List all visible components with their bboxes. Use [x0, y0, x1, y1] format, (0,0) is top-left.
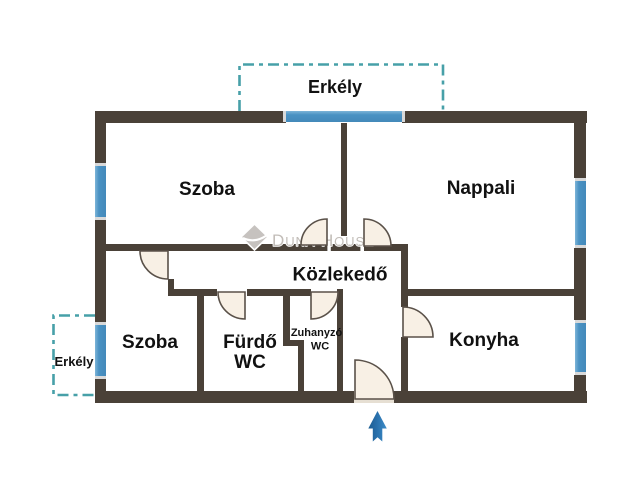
- svg-text:Erkély: Erkély: [54, 354, 94, 369]
- svg-text:Közlekedő: Közlekedő: [292, 265, 387, 286]
- svg-text:Nappali: Nappali: [447, 178, 516, 199]
- svg-text:Konyha: Konyha: [449, 330, 519, 351]
- svg-text:Zuhanyzó: Zuhanyzó: [291, 327, 343, 339]
- svg-text:Szoba: Szoba: [179, 179, 235, 200]
- svg-text:WC: WC: [311, 341, 329, 353]
- svg-text:Fürdő: Fürdő: [223, 332, 277, 353]
- svg-text:Szoba: Szoba: [122, 332, 178, 353]
- svg-text:Erkély: Erkély: [308, 77, 362, 97]
- svg-text:WC: WC: [234, 352, 266, 373]
